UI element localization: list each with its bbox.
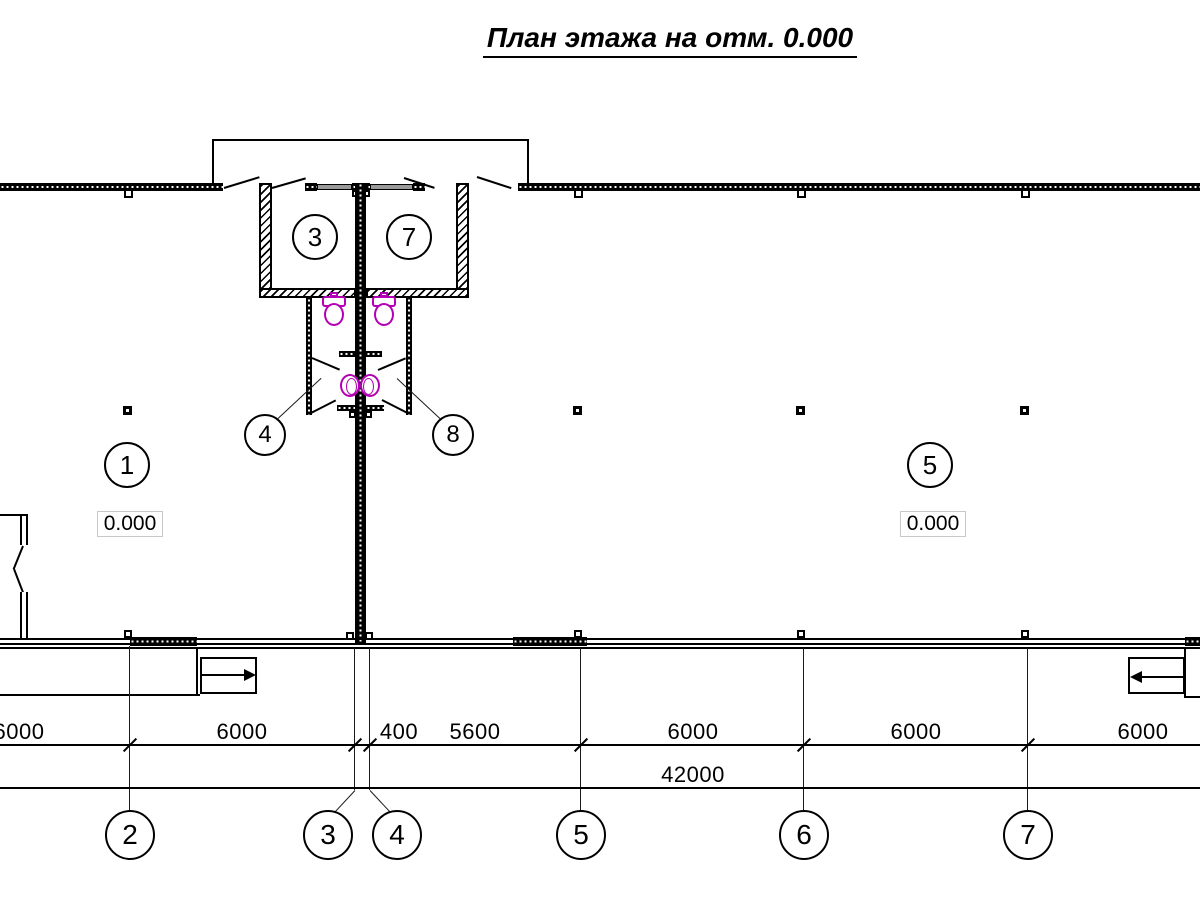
bottom-wall-line: [0, 647, 1200, 649]
sink-icon: [360, 374, 380, 397]
axis-leader-line: [334, 790, 355, 813]
room-tag-hall-right: 5: [907, 442, 953, 488]
vestibule-wall-left: [259, 183, 272, 298]
floor-plan-drawing: План этажа на отм. 0.000 3 7: [0, 0, 1200, 900]
room-tag-vestibule-left: 3: [292, 214, 338, 260]
door-jamb-stub: [305, 183, 317, 191]
door-swing-line: [309, 399, 337, 414]
room-tag-vestibule-right: 7: [386, 214, 432, 260]
leader-line: [278, 378, 322, 419]
door-leaf: [370, 184, 413, 190]
axis-bubble-4: 4: [372, 810, 422, 860]
dimension-label: 6000: [187, 719, 297, 745]
axis-leader-line: [370, 790, 391, 813]
axis-bubble-6: 6: [779, 810, 829, 860]
column-mark: [797, 189, 806, 198]
bottom-wall-masonry-segment: [1185, 637, 1200, 646]
toilet-icon: [372, 292, 396, 326]
toilet-bowl: [324, 303, 344, 326]
porch-edge: [1184, 696, 1200, 698]
left-wall-segment: [20, 516, 28, 545]
post-foot-mark: [365, 411, 372, 418]
dimension-label: 6000: [638, 719, 748, 745]
drawing-title: План этажа на отм. 0.000: [480, 22, 860, 54]
wc-partition-right: [406, 298, 412, 415]
column-mark: [1021, 189, 1030, 198]
grid-line-axis-2: [129, 646, 130, 810]
room-tag-wc-left: 4: [244, 414, 286, 456]
room-tag-wc-right: 8: [432, 414, 474, 456]
door-swing-line: [312, 357, 340, 371]
column-mark: [124, 189, 133, 198]
vestibule-wall-right: [456, 183, 469, 298]
dimension-label: 6000: [0, 719, 74, 745]
column: [1020, 406, 1029, 415]
dimension-total-label: 42000: [618, 762, 768, 788]
top-wall-right-segment: [518, 183, 1200, 191]
grid-line-axis-7: [1027, 648, 1028, 810]
elevation-mark: 0.000: [900, 511, 966, 537]
axis-bubble-5: 5: [556, 810, 606, 860]
bottom-wall-masonry-segment: [513, 637, 587, 646]
porch-edge: [196, 648, 198, 696]
elevation-mark: 0.000: [97, 511, 163, 537]
left-wall-segment: [20, 592, 28, 640]
column-mark: [797, 630, 805, 638]
porch-edge: [1184, 648, 1186, 698]
door-break-line: [13, 569, 24, 594]
door-break-line: [13, 546, 24, 570]
axis-bubble-2: 2: [105, 810, 155, 860]
wc-stub-wall: [366, 351, 382, 357]
column-mark: [1021, 630, 1029, 638]
dimension-line: [0, 744, 1200, 746]
wc-stub-wall: [339, 351, 355, 357]
grid-line-axis-6: [803, 648, 804, 810]
stair-arrow-shaft: [200, 674, 246, 676]
column-mark: [574, 189, 583, 198]
dimension-line: [0, 787, 1200, 789]
toilet-icon: [322, 292, 346, 326]
dimension-label: 5600: [420, 719, 530, 745]
toilet-bowl: [374, 303, 394, 326]
axis-bubble-3: 3: [303, 810, 353, 860]
door-leaf: [317, 184, 352, 190]
stair-direction-arrow: [1130, 671, 1142, 683]
column-mark: [124, 630, 132, 638]
column: [123, 406, 132, 415]
bottom-wall-masonry-segment: [130, 637, 197, 646]
leader-line: [397, 378, 441, 419]
grid-line-axis-5: [580, 648, 581, 810]
dimension-label: 6000: [861, 719, 971, 745]
door-jamb-stub: [413, 183, 425, 191]
column: [573, 406, 582, 415]
axis-bubble-7: 7: [1003, 810, 1053, 860]
door-swing-line: [378, 357, 406, 371]
post-foot-mark: [349, 411, 356, 418]
dimension-label: 6000: [1088, 719, 1198, 745]
room-tag-hall-left: 1: [104, 442, 150, 488]
porch-edge: [0, 694, 200, 696]
column-mark: [574, 630, 582, 638]
top-wall-left-segment: [0, 183, 223, 191]
grid-line-axis-3: [354, 648, 355, 790]
wc-partition-left: [306, 298, 312, 415]
stair-direction-arrow: [244, 669, 256, 681]
sink-icon: [340, 374, 360, 397]
stair-arrow-shaft: [1139, 676, 1185, 678]
column: [796, 406, 805, 415]
